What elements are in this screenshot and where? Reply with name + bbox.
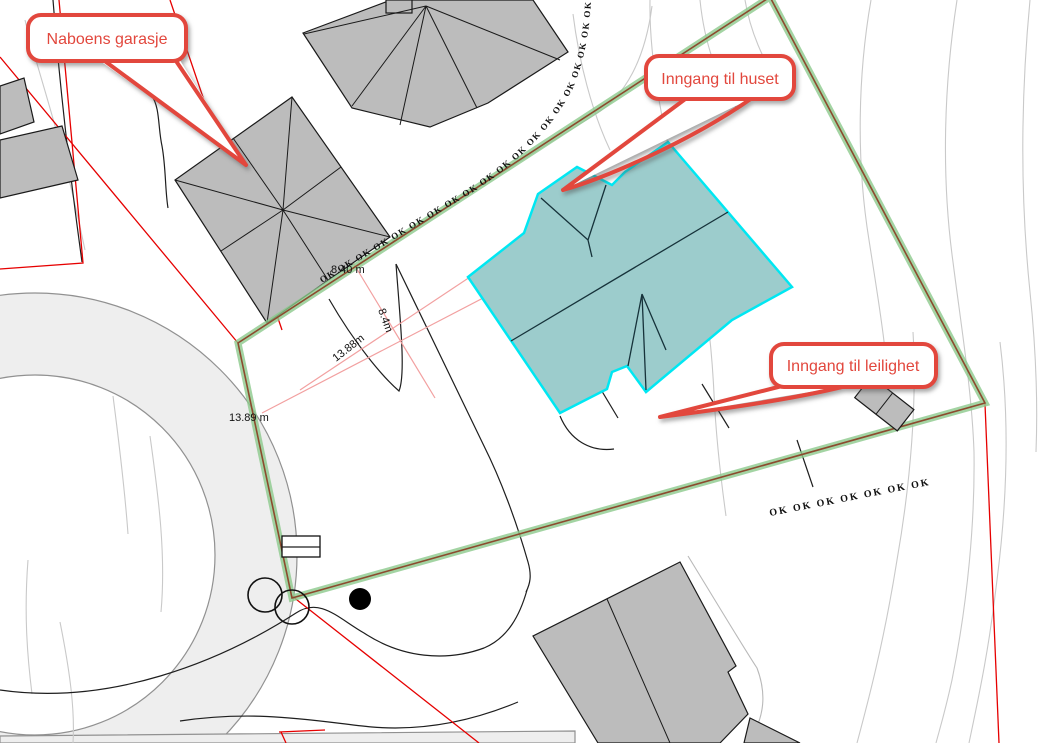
building-top	[303, 0, 568, 127]
callout-house-entrance-label: Inngang til huset	[661, 71, 779, 88]
boundary-point-dot	[349, 588, 371, 610]
map-canvas: OK OK OK OK OK OK OK OK OK OK OK OK OK O…	[0, 0, 1042, 743]
measurement-top: 8.40 m	[331, 264, 365, 276]
site-plan-map[interactable]: OK OK OK OK OK OK OK OK OK OK OK OK OK O…	[0, 0, 1042, 743]
callout-apartment-entrance-label: Inngang til leilighet	[787, 358, 920, 375]
boundary-marks-row: OK OK OK OK OK OK OK	[768, 477, 931, 519]
measurement-diag-short: 8.4m	[375, 307, 395, 334]
building-bottom	[533, 562, 800, 743]
highlighted-house	[468, 142, 792, 413]
callout-garage-label: Naboens garasje	[47, 31, 168, 48]
measurement-left: 13.89 m	[229, 412, 269, 424]
roundabout-road	[0, 293, 575, 743]
